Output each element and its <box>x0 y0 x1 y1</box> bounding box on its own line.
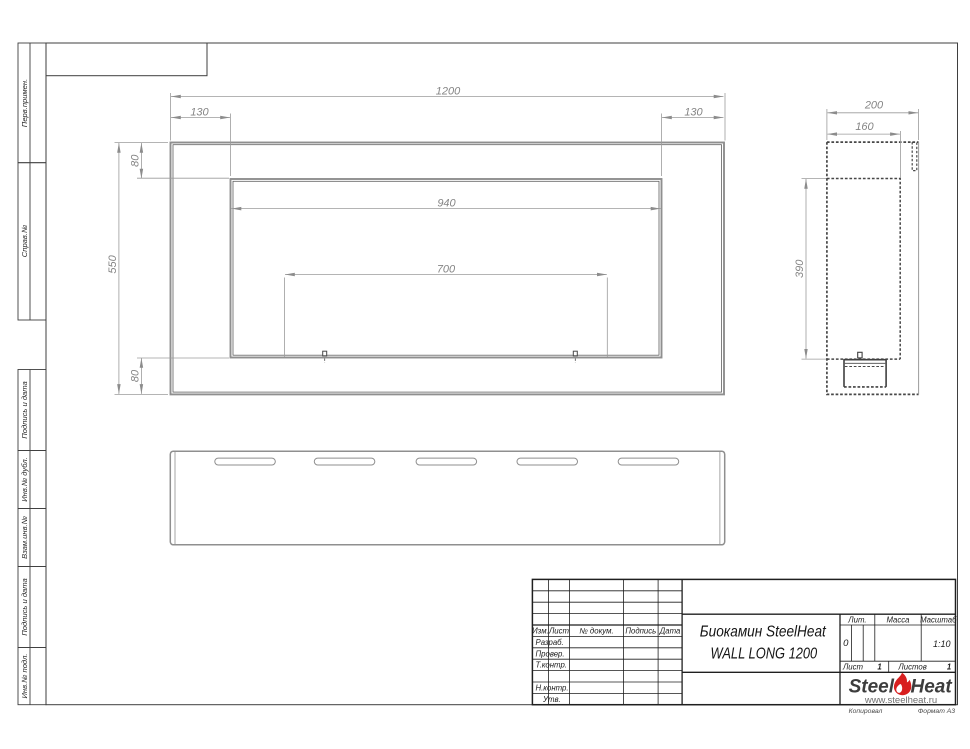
svg-text:Подпись: Подпись <box>625 627 656 636</box>
svg-text:700: 700 <box>437 263 456 275</box>
svg-text:WALL LONG 1200: WALL LONG 1200 <box>710 645 817 662</box>
svg-text:Масштаб: Масштаб <box>920 615 957 624</box>
svg-text:390: 390 <box>794 259 806 278</box>
svg-text:0: 0 <box>843 638 849 649</box>
svg-text:Изм.: Изм. <box>532 627 549 636</box>
svg-text:Формат А3: Формат А3 <box>918 708 955 715</box>
svg-text:Инв.№ подл.: Инв.№ подл. <box>20 653 29 698</box>
svg-text:Т.контр.: Т.контр. <box>536 661 567 670</box>
svg-text:Лист: Лист <box>842 662 864 671</box>
svg-text:1: 1 <box>947 662 951 671</box>
svg-text:Листов: Листов <box>897 662 926 671</box>
svg-text:Перв.примен.: Перв.примен. <box>20 79 29 127</box>
svg-text:200: 200 <box>864 99 884 111</box>
svg-text:80: 80 <box>129 154 141 167</box>
svg-text:www.steelheat.ru: www.steelheat.ru <box>864 695 937 706</box>
svg-text:160: 160 <box>855 121 874 133</box>
svg-text:Справ.№: Справ.№ <box>20 225 29 257</box>
svg-text:Копировал: Копировал <box>849 708 883 715</box>
svg-text:130: 130 <box>684 106 703 118</box>
svg-text:80: 80 <box>129 369 141 382</box>
svg-text:Взам.инв.№: Взам.инв.№ <box>20 516 29 559</box>
svg-text:Масса: Масса <box>886 615 910 624</box>
svg-text:№ докум.: № докум. <box>579 627 613 636</box>
svg-text:1:10: 1:10 <box>933 639 951 649</box>
svg-text:Утв.: Утв. <box>542 695 561 704</box>
svg-text:550: 550 <box>107 254 119 273</box>
svg-text:Биокамин SteelHeat: Биокамин SteelHeat <box>700 624 827 641</box>
svg-text:Н.контр.: Н.контр. <box>536 684 569 693</box>
svg-text:Подпись и дата: Подпись и дата <box>20 578 29 635</box>
svg-text:940: 940 <box>437 197 456 209</box>
svg-text:1200: 1200 <box>436 85 461 97</box>
svg-text:Разраб.: Разраб. <box>536 638 564 647</box>
svg-text:Провер.: Провер. <box>536 649 565 658</box>
svg-text:Лист: Лист <box>548 627 570 636</box>
svg-text:Дата: Дата <box>659 627 681 636</box>
svg-text:130: 130 <box>190 106 209 118</box>
svg-text:Подпись и дата: Подпись и дата <box>20 381 29 438</box>
svg-text:Инв.№ дубл.: Инв.№ дубл. <box>20 457 29 502</box>
svg-text:1: 1 <box>877 662 881 671</box>
svg-text:Лит.: Лит. <box>847 615 866 624</box>
